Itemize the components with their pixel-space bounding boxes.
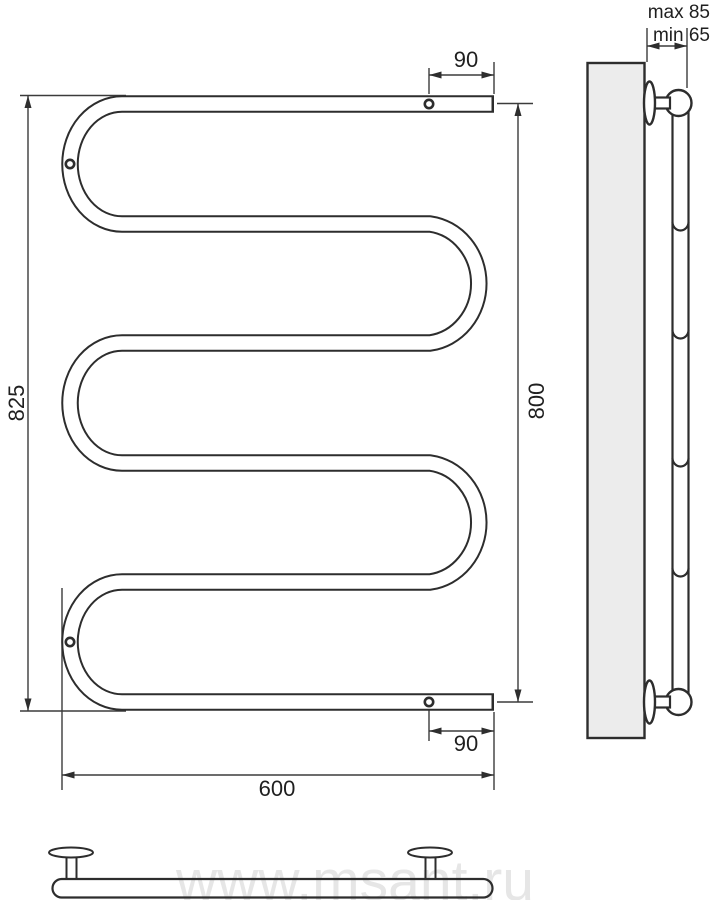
dimension-label-overall-width: 600: [259, 778, 296, 800]
front-view-drawing: [20, 62, 533, 790]
dimension-label-axis-height: 800: [526, 383, 548, 420]
dimension-label-overall-height: 825: [6, 385, 28, 422]
side-view-tube: [673, 103, 689, 702]
dimension-label-top-hole-offset: 90: [454, 49, 478, 71]
front-view-dimension-lines: [20, 62, 533, 790]
bottom-wall-bracket: [644, 681, 692, 724]
side-view-drawing: [588, 28, 692, 738]
dimension-label-wall-distance-min: min 65: [640, 26, 710, 45]
bottom-view-drawing: [49, 848, 493, 898]
front-view-dimension-arrows: [25, 72, 522, 779]
top-wall-bracket: [644, 82, 692, 125]
left-mount-stem: [49, 848, 93, 879]
serpentine-tube: [70, 104, 494, 702]
rail-plan-outline: [53, 879, 493, 898]
dimension-label-bottom-hole-offset: 90: [454, 733, 478, 755]
technical-drawing-page: www.msant.ru: [0, 0, 711, 900]
drawing-canvas: [0, 0, 711, 900]
side-view-tube-joints: [673, 222, 689, 577]
right-mount-stem: [408, 848, 452, 879]
mounting-holes: [66, 100, 433, 706]
dimension-label-wall-distance-max: max 85: [640, 3, 710, 22]
wall-panel: [588, 63, 645, 738]
